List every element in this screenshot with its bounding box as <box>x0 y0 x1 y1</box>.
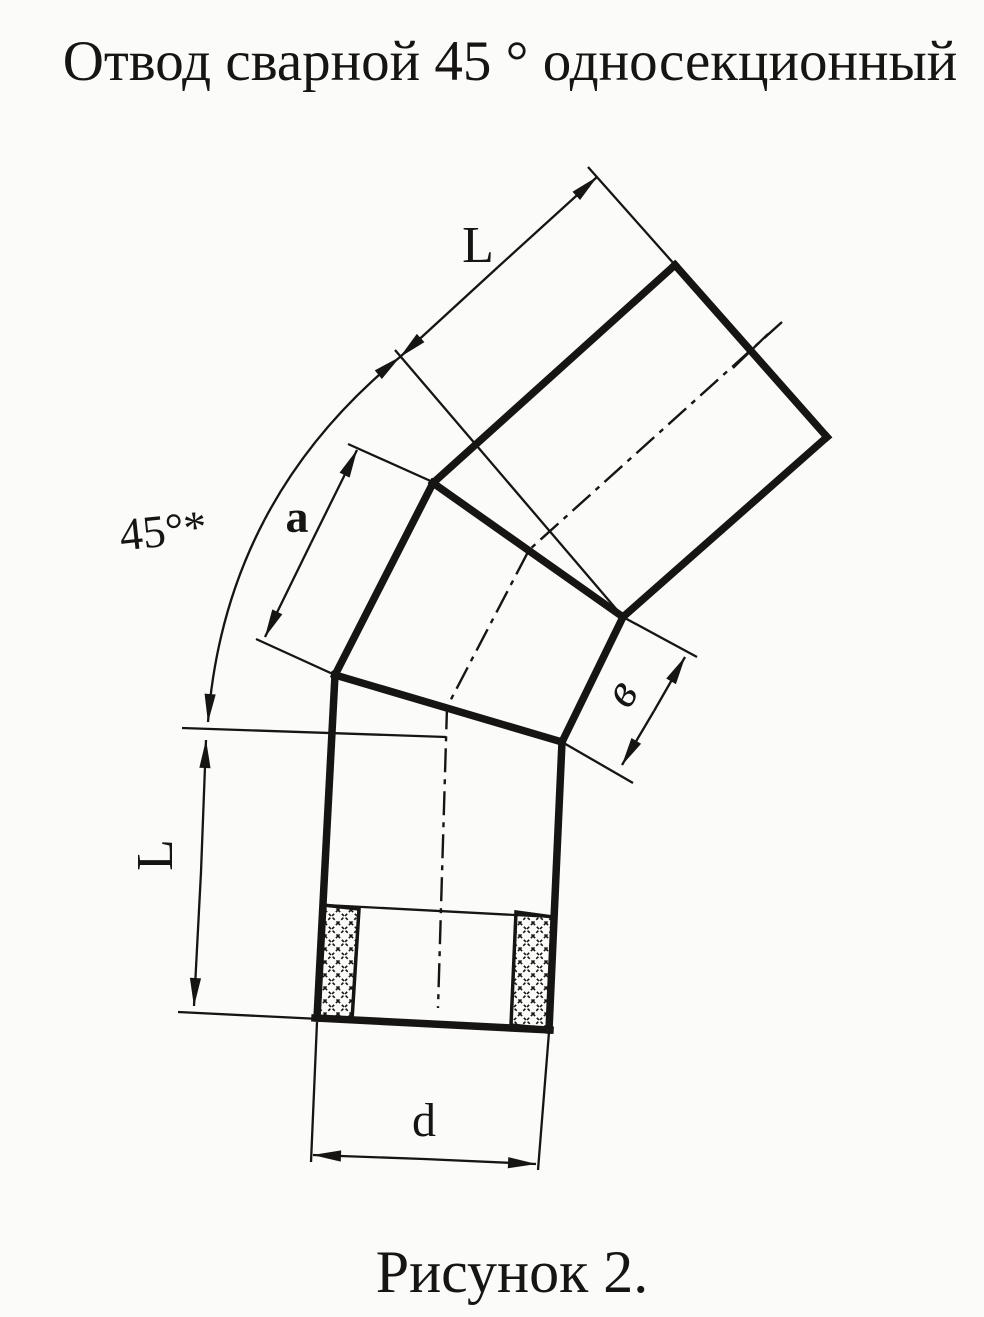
dimension-bend-angle: 45°* <box>117 357 400 722</box>
gasket-band-left <box>317 905 359 1020</box>
middle-section <box>335 483 623 742</box>
elbow-outline <box>315 265 827 1030</box>
weld-seam-upper <box>433 483 623 617</box>
scanned-drawing-page: L 45°* a в L <box>0 0 984 1317</box>
socket-end <box>317 905 553 1029</box>
pipe-centerline <box>438 322 782 1008</box>
top-length-label: L <box>462 217 494 274</box>
section-end-width-label: в <box>593 670 649 716</box>
figure-caption: Рисунок 2. <box>376 1239 649 1305</box>
dimension-diameter: d <box>311 1022 549 1170</box>
diameter-label: d <box>412 1094 436 1147</box>
dimension-bottom-length: L <box>127 728 446 1019</box>
bend-angle-label: 45°* <box>117 501 209 561</box>
section-side-label: a <box>286 491 309 542</box>
dimension-section-side: a <box>256 444 435 675</box>
upper-pipe-section <box>433 265 827 617</box>
bottom-length-label: L <box>127 839 184 871</box>
weld-seam-lower <box>335 675 562 742</box>
technical-drawing: L 45°* a в L <box>0 0 984 1317</box>
drawing-title: Отвод сварной 45 ° односекционный <box>63 30 958 93</box>
gasket-band-right <box>511 912 553 1029</box>
